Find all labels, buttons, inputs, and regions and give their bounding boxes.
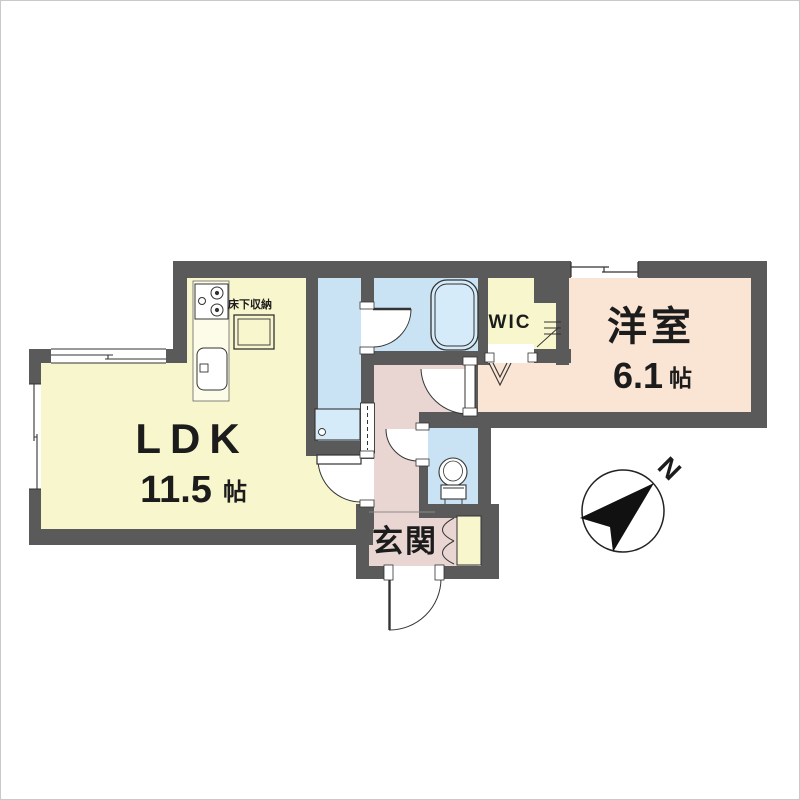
kitchen-sink: [197, 348, 227, 390]
wall-south-ldk: [29, 529, 373, 545]
label-ldk-size: 11.5: [140, 469, 212, 511]
label-underfloor-storage: 床下収納: [228, 297, 272, 311]
kitchen-stove: [195, 284, 228, 319]
window-western-north: [571, 261, 638, 278]
wall-east: [751, 261, 767, 428]
wall-entrance-east: [481, 504, 499, 579]
floorplan-svg: N LDK 11.5 帖 洋室 6.1 帖 WIC 玄関 床下収納: [1, 1, 799, 799]
wall-wic-western: [556, 277, 569, 365]
label-ldk: LDK: [135, 415, 248, 462]
bathtub: [431, 280, 478, 350]
wall-north: [173, 261, 767, 278]
wall-bath-wic: [478, 277, 488, 365]
floorplan-image: N LDK 11.5 帖 洋室 6.1 帖 WIC 玄関 床下収納: [0, 0, 800, 800]
wall-wic-notch: [534, 277, 556, 303]
washroom-sliding-door: [361, 403, 375, 453]
label-wic: WIC: [489, 312, 532, 333]
label-western-room: 洋室: [607, 305, 695, 349]
label-western-size: 6.1: [613, 355, 663, 396]
window-ldk-west: [29, 384, 41, 489]
compass-north-label: N: [652, 451, 687, 486]
wall-kitchen-west: [173, 261, 187, 363]
label-western-unit: 帖: [669, 365, 692, 391]
washing-machine-pan: [315, 409, 360, 440]
kitchen-counter: [193, 281, 229, 401]
window-ldk-north: [51, 349, 166, 363]
compass: N: [580, 451, 687, 552]
toilet: [439, 458, 467, 504]
entrance-door: [384, 565, 444, 630]
wall-toilet-east: [478, 416, 491, 518]
label-entrance: 玄関: [372, 524, 438, 559]
label-ldk-unit: 帖: [223, 479, 247, 506]
